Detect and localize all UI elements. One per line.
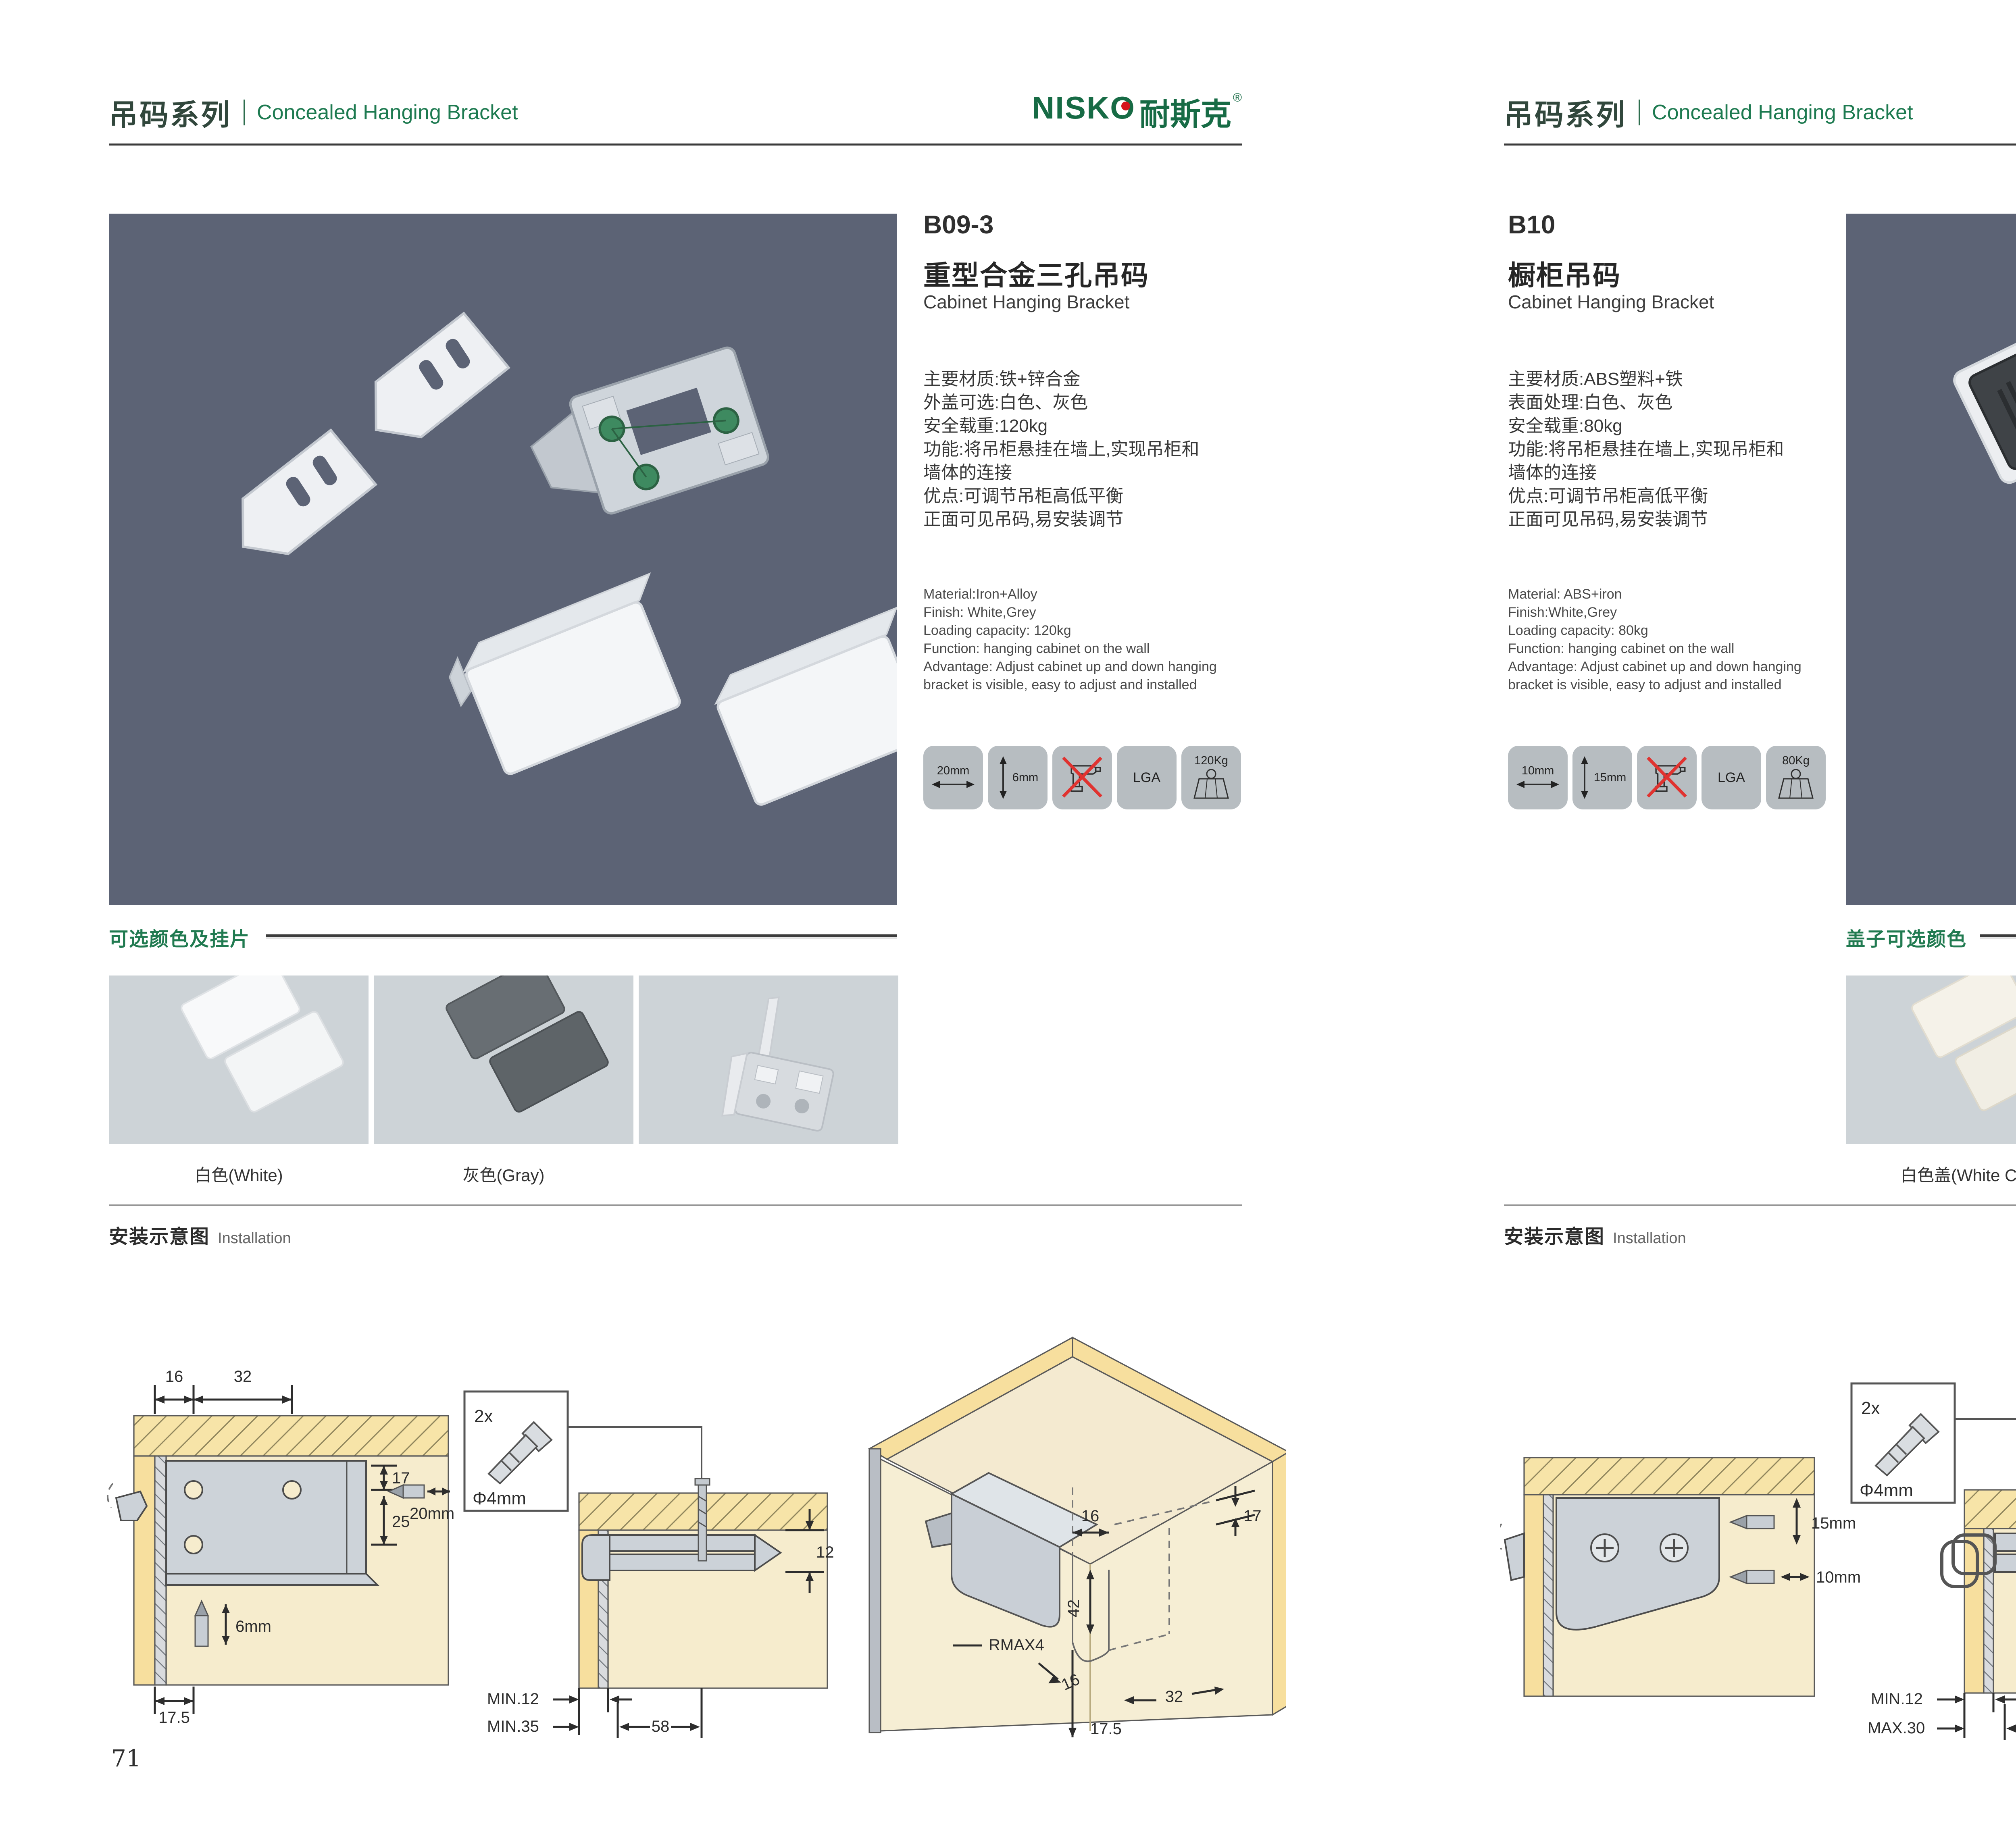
specs-cn: 主要材质:ABS塑料+铁 表面处理:白色、灰色 安全载重:80kg 功能:将吊柜… [1508,368,1831,531]
svg-text:MIN.12: MIN.12 [487,1690,539,1708]
logo-red-dot-icon [1121,102,1130,110]
product-code: B10 [1508,210,1555,239]
header-rule [109,144,1242,146]
spec-line: 功能:将吊柜悬挂在墙上,实现吊柜和 [1508,438,1831,461]
mounting-plate [166,1461,377,1585]
svg-text:17.5: 17.5 [158,1709,190,1725]
spec-line: 正面可见吊码,易安装调节 [1508,508,1831,531]
registered-mark: ® [1233,91,1242,105]
weight-icon [1775,768,1817,801]
svg-text:58: 58 [652,1718,670,1735]
lga-cert-icon: LGA [1702,746,1761,809]
spec-line: Loading capacity: 120kg [923,622,1254,640]
spec-line: 优点:可调节吊柜高低平衡 [923,485,1246,508]
svg-text:MIN.12: MIN.12 [1871,1690,1923,1708]
bottom-dims: MIN.12 MIN.35 58 [487,1688,702,1738]
page-number: 71 [111,1745,141,1772]
spec-line: 主要材质:ABS塑料+铁 [1508,368,1831,391]
nisko-logo: NISKO 耐斯克 ® [1008,89,1242,134]
header-rule [1504,144,2016,146]
cover-cap-1 [442,574,700,782]
v-arrow-icon [1579,755,1591,800]
dim-17-5-bottom: 17.5 [155,1687,194,1725]
spec-line: Finish:White,Grey [1508,603,1839,622]
spec-line: 安全载重:120kg [923,414,1246,438]
section-divider [109,1204,1242,1206]
catalog-spread: 吊码系列 Concealed Hanging Bracket NISKO 耐斯克… [0,0,2016,1847]
screw-callout-box: 2x Φ4mm [1851,1383,1955,1503]
svg-text:32: 32 [234,1368,252,1385]
product-title-en: Cabinet Hanging Bracket [1508,291,1714,313]
spec-line: 表面处理:白色、灰色 [1508,391,1831,414]
svg-text:17: 17 [1243,1507,1262,1525]
color-swatches: 白色盖(White Cap) 灰色盖(Gray Cap) [1846,975,2016,1186]
logo-cjk-text: 耐斯克 [1139,89,1231,134]
weight-icon [1190,768,1232,801]
svg-text:6mm: 6mm [235,1618,271,1635]
product-title-cn: 重型合金三孔吊码 [923,253,1149,293]
svg-text:RMAX4: RMAX4 [989,1636,1044,1654]
product-photo-b09-3 [109,214,897,905]
height-clearance-icon: 15mm [1572,746,1632,809]
specs-cn: 主要材质:铁+锌合金 外盖可选:白色、灰色 安全载重:120kg 功能:将吊柜悬… [923,368,1246,531]
dim-32-top: 32 [194,1368,292,1414]
swatch-hanging-plate [639,975,898,1186]
svg-text:16: 16 [1081,1507,1100,1525]
color-swatches: 白色(White) 灰色(Gray) [109,975,898,1186]
series-title: 吊码系列 [109,91,231,133]
spec-line: 正面可见吊码,易安装调节 [923,508,1246,531]
spec-line: 安全载重:80kg [1508,414,1831,438]
spec-line: 墙体的连接 [923,461,1246,485]
svg-text:MAX.30: MAX.30 [1868,1719,1925,1737]
bracket-mechanism [521,346,771,531]
h-arrow-icon [931,778,975,791]
product-photo-b10 [1846,214,2016,905]
install-diagram-section: 2x Φ4mm 18 [1847,1371,2016,1741]
spec-line: Advantage: Adjust cabinet up and down ha… [923,658,1254,676]
width-clearance-icon: 10mm [1508,746,1568,809]
spec-line: Finish: White,Grey [923,603,1254,622]
lga-cert-icon: LGA [1117,746,1177,809]
svg-text:25: 25 [392,1513,410,1531]
svg-text:32: 32 [1165,1688,1183,1706]
v-arrow-icon [997,755,1009,800]
installation-header: 安装示意图Installation [109,1221,291,1249]
svg-text:16: 16 [165,1368,183,1385]
spec-line: 墙体的连接 [1508,461,1831,485]
svg-text:Φ4mm: Φ4mm [473,1489,526,1508]
install-diagram-side-view: 16 32 17 25 20mm [105,1362,460,1725]
swatch-label: 白色盖(White Cap) [1900,1162,2016,1186]
spec-line: Advantage: Adjust cabinet up and down ha… [1508,658,1839,676]
spec-line: Function: hanging cabinet on the wall [923,640,1254,658]
photo-illustration [109,214,897,905]
swatch-label: 灰色(Gray) [463,1162,545,1186]
spec-line: Material:Iron+Alloy [923,585,1254,603]
spec-line: bracket is visible, easy to adjust and i… [1508,676,1839,694]
spec-line: 主要材质:铁+锌合金 [923,368,1246,391]
spec-line: 优点:可调节吊柜高低平衡 [1508,485,1831,508]
weight-capacity-icon: 80Kg [1766,746,1826,809]
color-section-title: 盖子可选颜色 [1846,923,1967,951]
feature-icons: 20mm 6mm [923,746,1241,809]
header-divider [1639,100,1640,125]
feature-icons: 10mm 15mm [1508,746,1826,809]
height-clearance-icon: 6mm [988,746,1048,809]
series-subtitle: Concealed Hanging Bracket [257,100,518,125]
cover-cap-2 [708,608,897,807]
spec-line: 外盖可选:白色、灰色 [923,391,1246,414]
svg-text:Φ4mm: Φ4mm [1860,1481,1913,1500]
swatch-white: 白色(White) [109,975,369,1186]
install-diagram-section: 2x Φ4mm 12 [460,1371,839,1741]
width-clearance-icon: 20mm [923,746,983,809]
install-diagram-3d: 16 17 42 RMAX4 16 32 [831,1286,1286,1745]
svg-text:17: 17 [392,1469,410,1487]
svg-text:MIN.35: MIN.35 [487,1718,539,1735]
swatch-white-cap: 白色盖(White Cap) [1846,975,2016,1186]
page-header-right: 吊码系列 Concealed Hanging Bracket [1504,91,1913,133]
series-subtitle: Concealed Hanging Bracket [1652,100,1913,125]
logo-latin-text: NISKO [1032,89,1135,126]
wall-plate-2 [216,426,381,572]
specs-en: Material:Iron+Alloy Finish: White,Grey L… [923,585,1254,694]
series-title: 吊码系列 [1504,91,1627,133]
wall-plate-1 [349,309,514,456]
svg-text:2x: 2x [474,1406,493,1426]
no-drill-icon [1637,746,1697,809]
svg-text:42: 42 [1065,1599,1083,1618]
screw-callout-box: 2x Φ4mm [464,1391,568,1511]
dim-16-top: 16 [155,1368,194,1414]
swatch-gray: 灰色(Gray) [374,975,633,1186]
bottom-dims: MIN.12 MAX.30 67 [1868,1690,2016,1740]
swatch-label: 白色(White) [194,1162,283,1186]
color-section-title: 可选颜色及挂片 [109,923,250,951]
wall-hook [1500,1524,1524,1580]
no-drill-icon [1052,746,1112,809]
svg-text:2x: 2x [1861,1398,1880,1418]
h-arrow-icon [1516,778,1560,791]
installation-header: 安装示意图Installation [1504,1221,1686,1249]
cabinet-bracket-1 [1951,275,2016,486]
svg-text:20mm: 20mm [410,1505,454,1523]
page-header-left: 吊码系列 Concealed Hanging Bracket [109,91,518,133]
section-divider [1504,1204,2016,1206]
spec-line: Loading capacity: 80kg [1508,622,1839,640]
svg-text:17.5: 17.5 [1090,1720,1122,1738]
spec-line: 功能:将吊柜悬挂在墙上,实现吊柜和 [923,438,1246,461]
product-title-en: Cabinet Hanging Bracket [923,291,1129,313]
spec-line: bracket is visible, easy to adjust and i… [923,676,1254,694]
spec-line: Function: hanging cabinet on the wall [1508,640,1839,658]
header-divider [244,100,245,125]
product-code: B09-3 [923,210,993,239]
install-diagram-side-view: 15mm 10mm [1500,1419,1871,1758]
spec-line: Material: ABS+iron [1508,585,1839,603]
specs-en: Material: ABS+iron Finish:White,Grey Loa… [1508,585,1839,694]
color-section-rule [1980,934,2016,938]
product-title-cn: 橱柜吊码 [1508,253,1621,293]
color-section-rule [266,934,897,938]
photo-illustration [1846,214,2016,905]
weight-capacity-icon: 120Kg [1181,746,1241,809]
